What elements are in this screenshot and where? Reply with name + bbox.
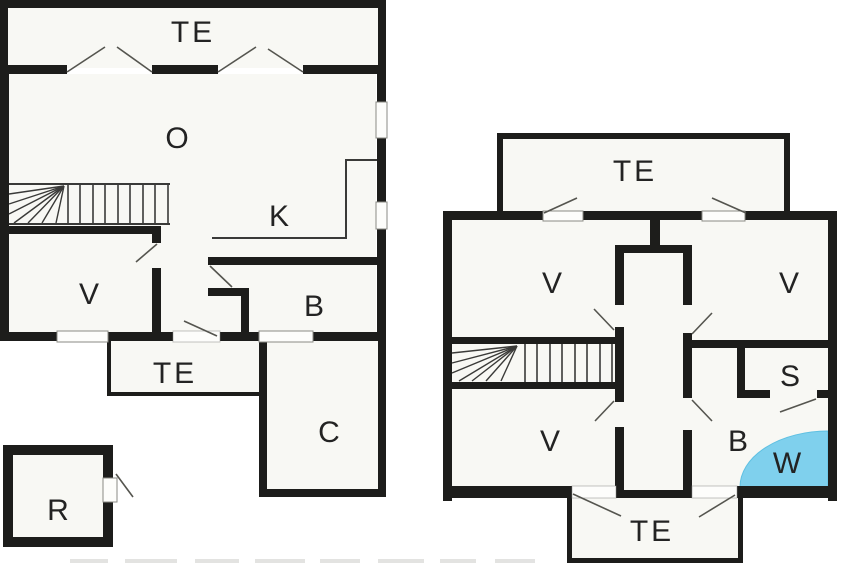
- room-label-kitchen: K: [269, 200, 291, 233]
- room-label-terrace-side: TE: [153, 357, 197, 390]
- door-opening: [259, 331, 313, 342]
- room-label-bedroom-top-right: V: [779, 267, 801, 300]
- wall-segment: [313, 332, 386, 341]
- room-area: [267, 341, 378, 489]
- wall-segment: [108, 332, 173, 341]
- wall-segment: [152, 226, 161, 243]
- wall-segment: [103, 445, 113, 478]
- artifact-dash: [255, 559, 305, 563]
- wall-segment: [0, 0, 8, 73]
- wall-segment: [3, 445, 13, 547]
- room-label-bathroom: B: [304, 290, 326, 323]
- window-opening: [376, 202, 387, 229]
- wall-segment: [377, 137, 386, 203]
- wall-segment: [0, 65, 9, 341]
- door-opening: [702, 211, 745, 221]
- bottom-edge-artifact: [70, 559, 535, 563]
- wall-segment: [259, 341, 267, 497]
- door-opening: [543, 211, 583, 221]
- artifact-dash: [195, 559, 239, 563]
- door-opening: [692, 486, 737, 498]
- room-label-shower: W: [773, 447, 803, 480]
- wall-segment: [683, 430, 692, 491]
- wall-segment: [378, 0, 386, 73]
- wall-segment: [497, 133, 790, 139]
- wall-segment: [220, 332, 259, 341]
- wall-segment: [828, 211, 837, 501]
- wall-segment: [9, 226, 160, 234]
- room-label-terrace-bottom: TE: [630, 515, 674, 548]
- floor-plan-svg: TE O K V B TE C R: [0, 0, 848, 565]
- wall-segment: [152, 65, 218, 74]
- artifact-dash: [125, 559, 177, 563]
- wall-segment: [103, 502, 113, 547]
- wall-segment: [683, 333, 692, 398]
- wall-segment: [616, 490, 692, 498]
- wall-segment: [303, 65, 386, 74]
- wall-segment: [745, 211, 837, 220]
- left-plan: TE O K V B TE C R: [0, 0, 387, 547]
- wall-segment: [443, 486, 572, 498]
- artifact-dash: [378, 559, 424, 563]
- wall-segment: [107, 392, 260, 396]
- room-label-bedroom-bottom-left: V: [540, 425, 562, 458]
- artifact-dash: [320, 559, 360, 563]
- wall-segment: [152, 268, 161, 341]
- room-label-bedroom: V: [79, 278, 101, 311]
- wall-segment: [452, 382, 617, 389]
- room-label-outbuilding: R: [47, 494, 71, 527]
- wall-segment: [615, 245, 624, 305]
- wall-segment: [377, 228, 386, 341]
- wall-segment: [443, 211, 452, 501]
- wall-segment: [3, 445, 113, 455]
- wall-segment: [3, 537, 113, 547]
- room-label-living-room: O: [165, 122, 190, 155]
- artifact-dash: [440, 559, 476, 563]
- artifact-dash: [495, 559, 535, 563]
- window-opening: [376, 102, 387, 138]
- wall-segment: [683, 245, 692, 305]
- wall-segment: [692, 340, 828, 348]
- wall-segment: [377, 65, 386, 103]
- wall-segment: [241, 288, 249, 341]
- wall-segment: [443, 211, 543, 220]
- wall-segment: [378, 341, 386, 497]
- wall-segment: [615, 427, 624, 491]
- wall-segment: [784, 133, 790, 218]
- room-label-storage: S: [780, 360, 802, 393]
- room-label-bedroom-top-left: V: [542, 267, 564, 300]
- wall-segment: [737, 390, 770, 398]
- wall-segment: [617, 245, 692, 253]
- window-opening: [57, 331, 108, 342]
- wall-segment: [107, 341, 111, 396]
- wall-segment: [817, 390, 828, 398]
- room-label-terrace-top: TE: [171, 16, 215, 49]
- floor-plan-image: TE O K V B TE C R: [0, 0, 848, 565]
- wall-segment: [452, 337, 617, 344]
- artifact-dash: [70, 559, 108, 563]
- room-label-terrace-top: TE: [613, 155, 657, 188]
- wall-segment: [208, 257, 377, 265]
- wall-segment: [567, 558, 743, 563]
- right-plan: TE V V V S B W TE: [443, 133, 837, 563]
- wall-segment: [737, 486, 837, 498]
- door-opening: [103, 478, 117, 502]
- wall-segment: [0, 0, 386, 8]
- wall-segment: [497, 133, 503, 218]
- room-label-garage: C: [318, 416, 342, 449]
- left-plan-room-areas: [8, 8, 378, 537]
- door-swing-line: [116, 474, 133, 497]
- wall-segment: [259, 489, 386, 497]
- wall-segment: [0, 65, 67, 74]
- wall-segment: [567, 498, 572, 563]
- wall-segment: [738, 498, 743, 563]
- wall-segment: [583, 211, 702, 220]
- wall-segment: [0, 332, 57, 341]
- door-opening: [173, 331, 220, 342]
- room-label-bathroom: B: [728, 425, 750, 458]
